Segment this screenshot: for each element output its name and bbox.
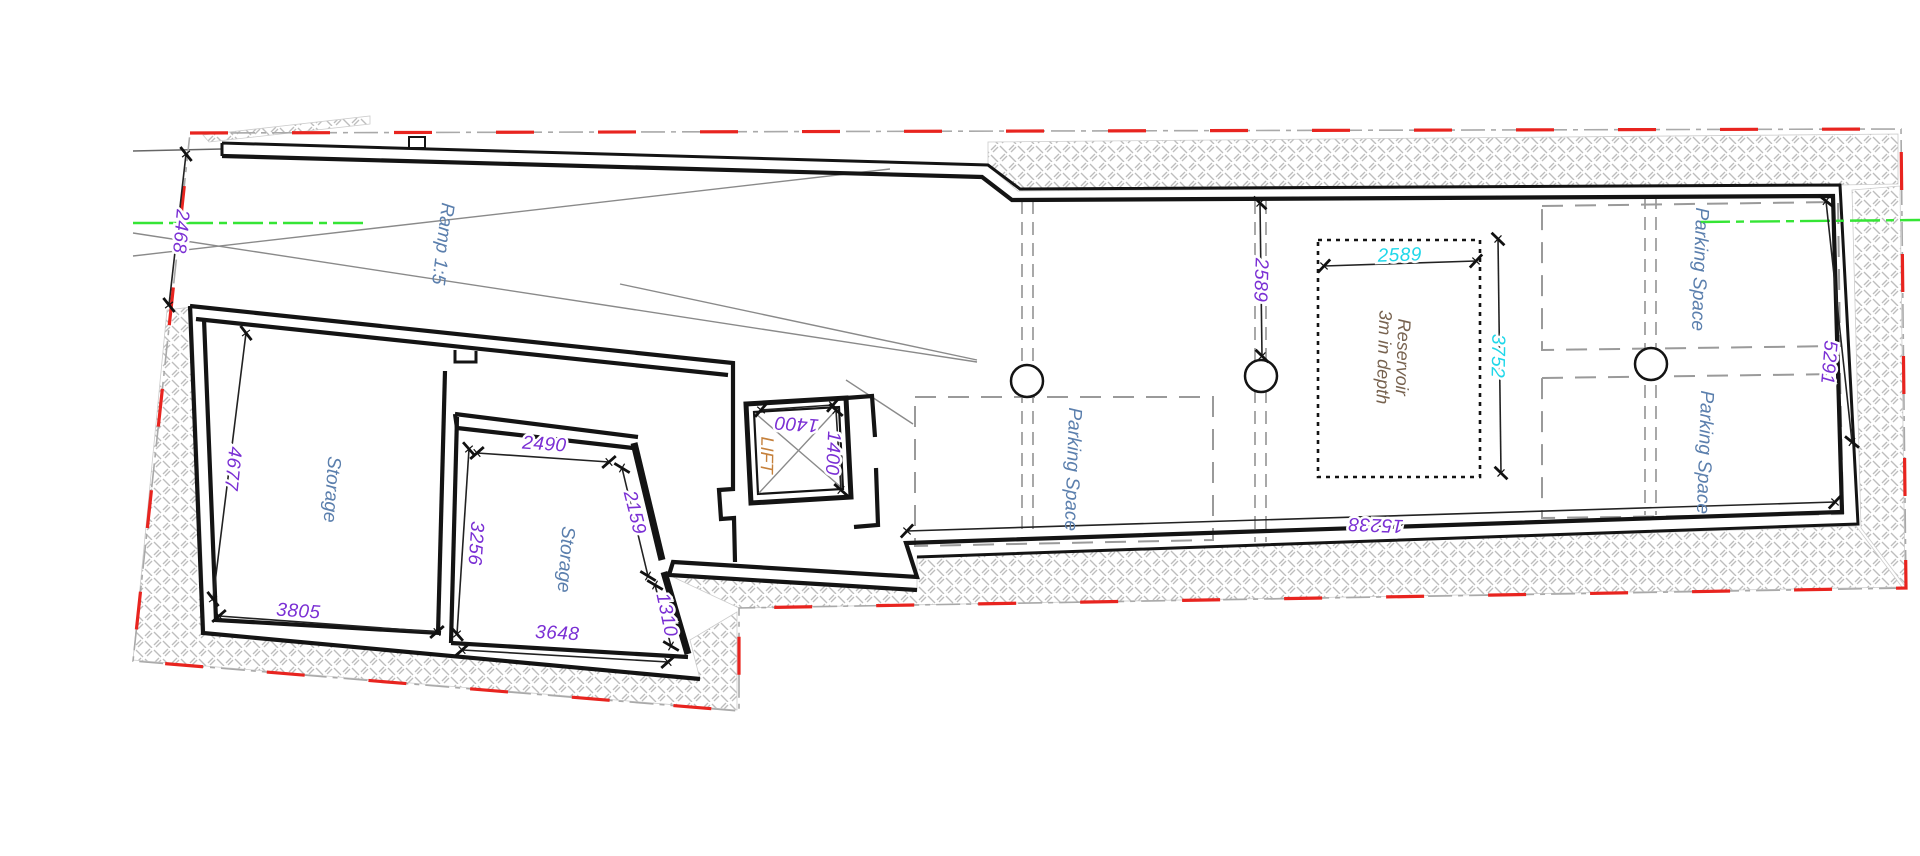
dim-2468-label: 2468 <box>168 208 193 255</box>
dim-15238-label: 15238 <box>1348 513 1404 536</box>
dim-2589-reservoir-label: 2589 <box>1376 244 1422 267</box>
ramp-wall-notch <box>409 137 425 148</box>
column-circle-2 <box>1245 360 1277 392</box>
centerline-green <box>133 220 1920 223</box>
dim-1400-right-label: 1400 <box>821 431 844 476</box>
ramp-lines <box>133 149 977 424</box>
ramp-edge-line-2 <box>133 169 890 256</box>
room-label-parking-top-right: Parking Space <box>1687 207 1712 331</box>
room-label-ramp: Ramp 1:5 <box>427 202 458 287</box>
room-label-parking-middle: Parking Space <box>1060 407 1085 531</box>
columns <box>1011 348 1667 397</box>
room-label-storage-1: Storage <box>319 455 345 523</box>
storage-divider-wall-left <box>438 371 445 634</box>
room-label-reservoir-line2: 3m in depth <box>1372 310 1395 405</box>
hatch-corner-ticks <box>203 116 370 142</box>
dim-5291-label: 5291 <box>1816 340 1841 386</box>
room-label-lift: LIFT <box>757 436 778 475</box>
boundary-gray-dashdot <box>133 129 1906 711</box>
column-circle-3 <box>1635 348 1667 380</box>
site-boundary <box>133 129 1906 711</box>
ramp-edge-line-4 <box>846 380 913 424</box>
hatch-top-band <box>988 134 1898 191</box>
boundary-red-dashes <box>133 129 1906 711</box>
hatch-right-band <box>1852 186 1905 586</box>
ramp-edge-line-3 <box>620 284 977 360</box>
dim-1310-label: 1310 <box>652 591 682 639</box>
ramp-top-extension-line <box>133 149 222 151</box>
dim-2589-column-label: 2589 <box>1249 257 1272 303</box>
room-label-parking-bottom-right: Parking Space <box>1692 390 1717 514</box>
storage2-bottom-wall-inner <box>451 643 688 657</box>
storage-top-wall-notch <box>455 350 476 362</box>
column-circle-1 <box>1011 365 1043 397</box>
dim-3752-reservoir-label: 3752 <box>1487 334 1509 379</box>
dim-3256-label: 3256 <box>463 521 487 567</box>
floor-plan-canvas: 2468 4677 3805 2490 3256 2159 1310 3648 … <box>0 0 1920 856</box>
dim-3805-label: 3805 <box>276 599 322 623</box>
storage-divider-wall-right <box>451 417 457 643</box>
dim-1400-top-label: 1400 <box>774 411 820 435</box>
room-label-storage-2: Storage <box>553 525 579 593</box>
hatch-bottom-band <box>673 526 1902 608</box>
hatch-regions <box>133 116 1905 710</box>
dim-4677-label: 4677 <box>220 445 246 492</box>
floor-plan-page: 2468 4677 3805 2490 3256 2159 1310 3648 … <box>0 0 1920 856</box>
dim-3648-label: 3648 <box>535 622 580 645</box>
dim-2490-label: 2490 <box>521 432 568 456</box>
storage-block-top-wall-inner <box>196 319 728 375</box>
